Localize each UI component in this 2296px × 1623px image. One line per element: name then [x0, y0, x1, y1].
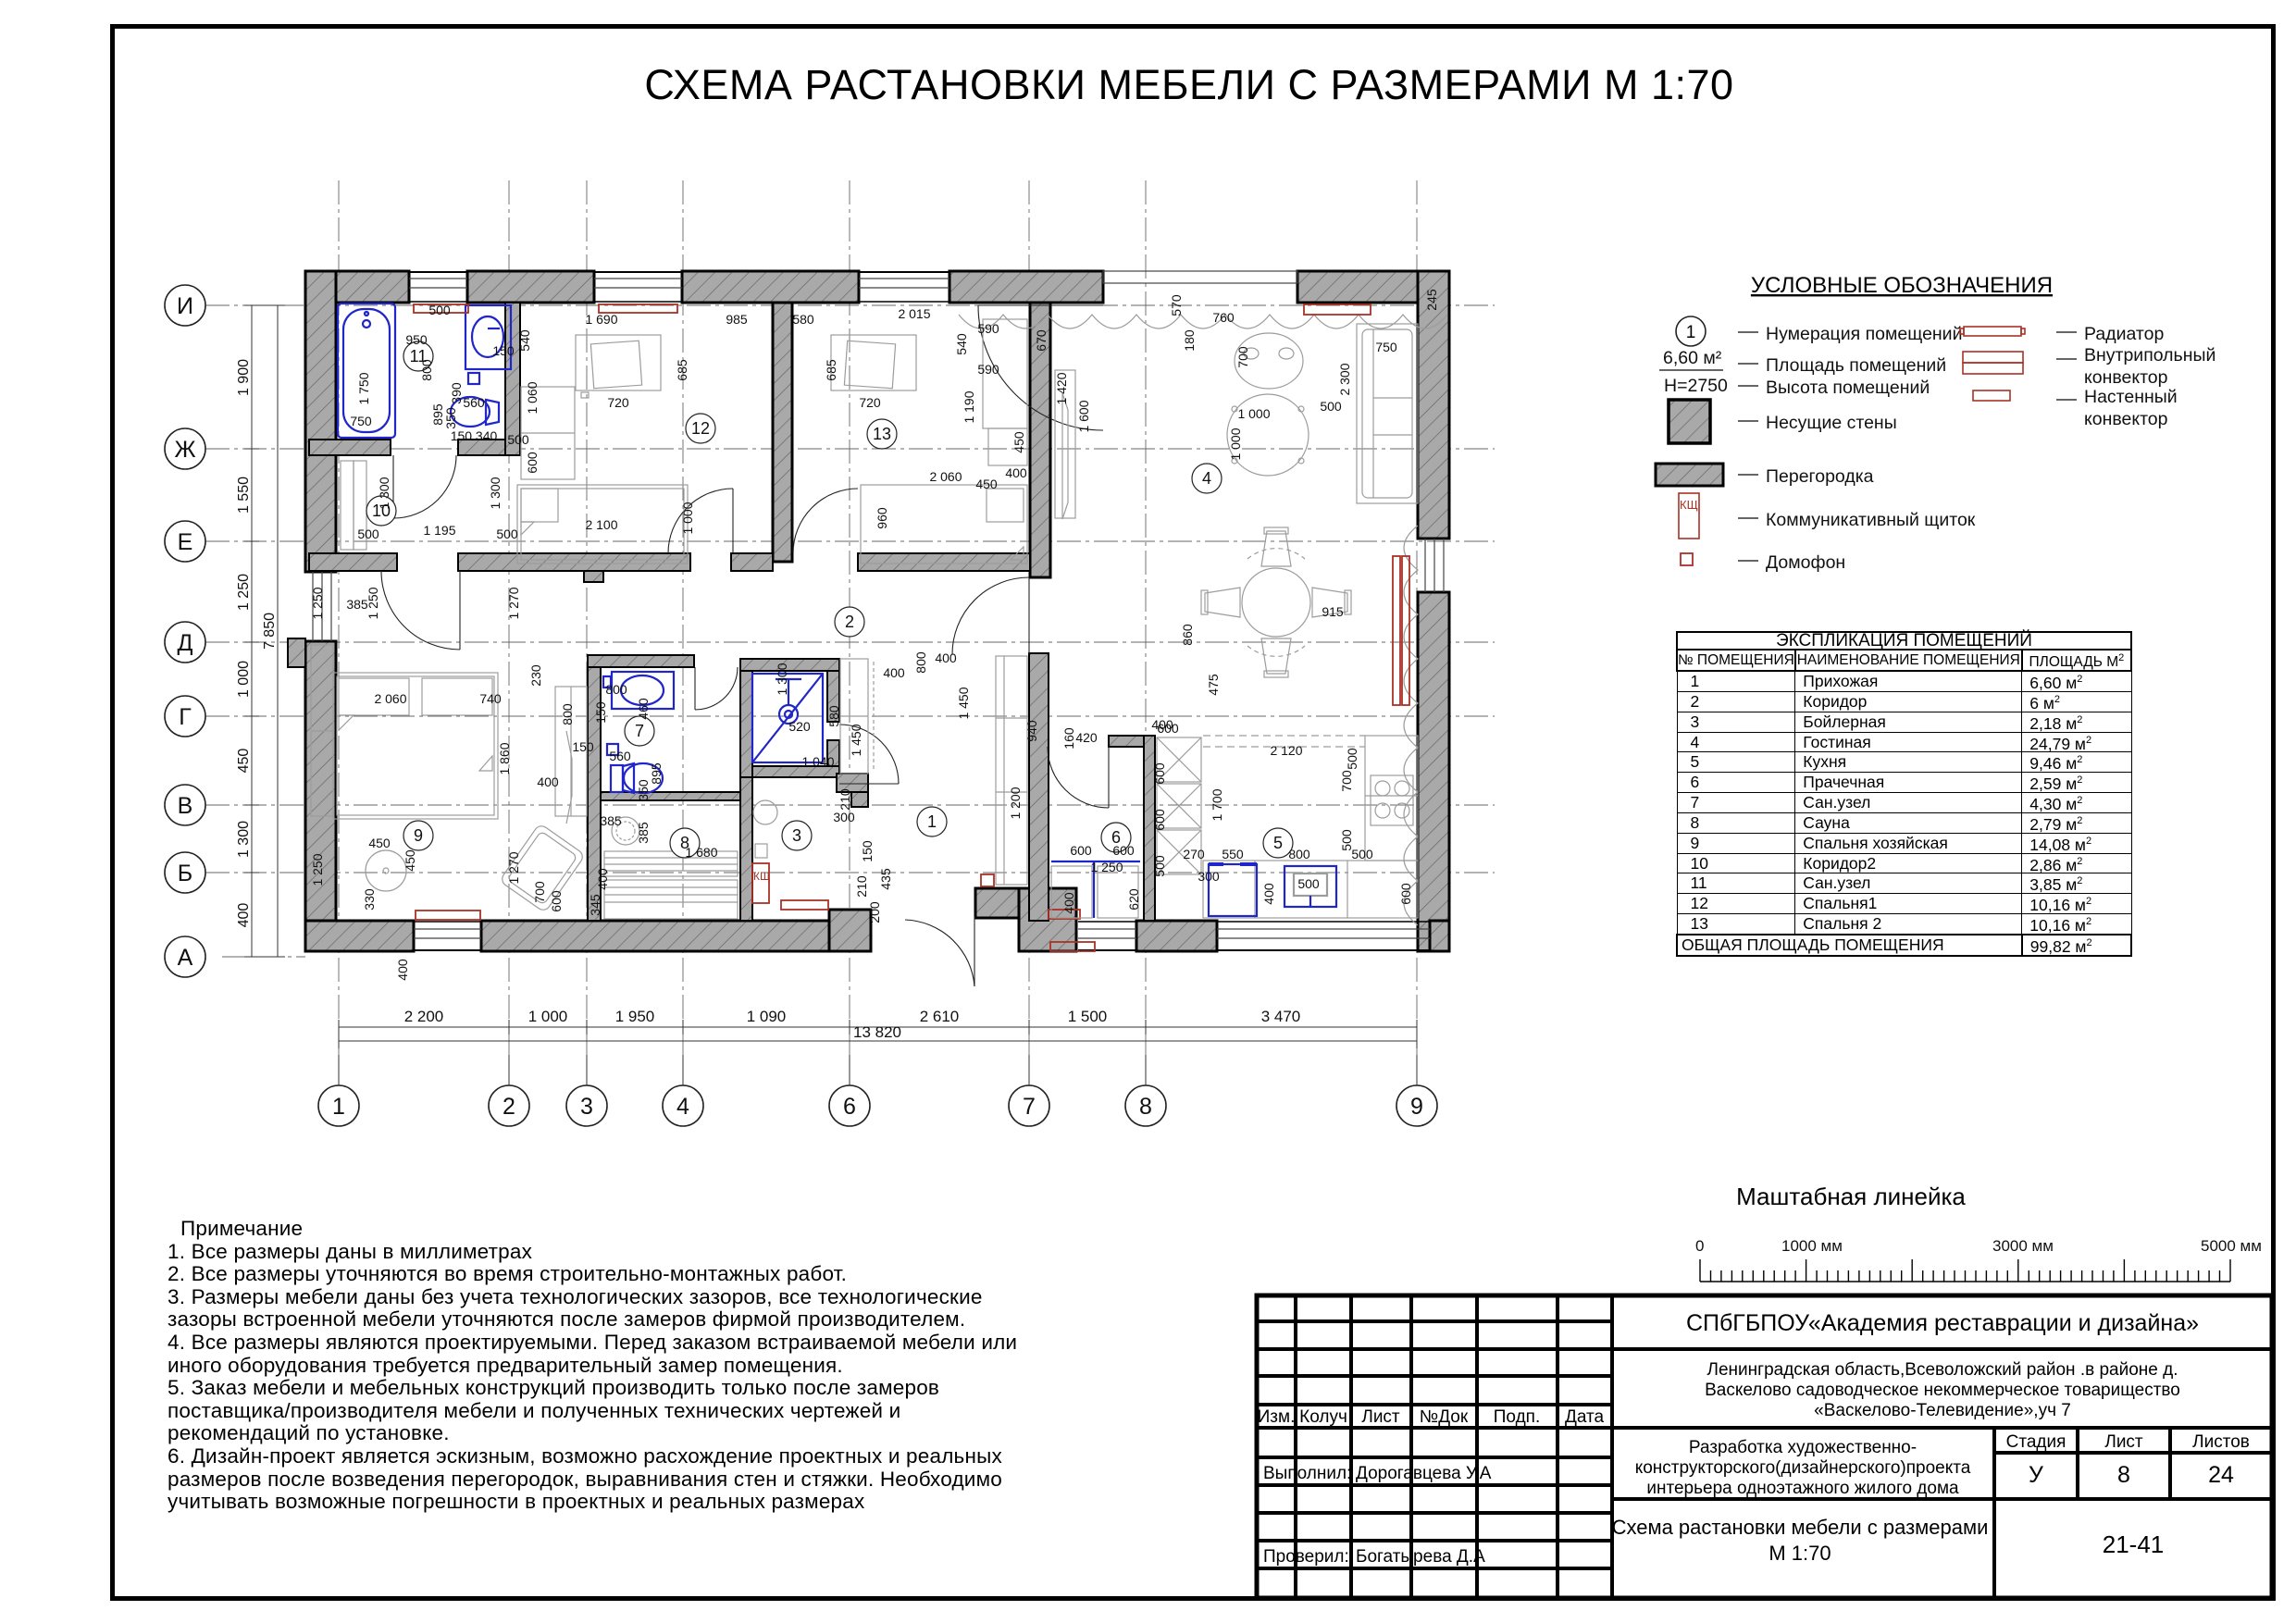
svg-text:Радиатор: Радиатор: [2084, 324, 2164, 344]
svg-text:Васкелово садоводческое некомм: Васкелово садоводческое некоммерческое т…: [1705, 1381, 2180, 1400]
svg-text:Перегородка: Перегородка: [1766, 466, 1874, 487]
svg-text:800: 800: [605, 682, 627, 697]
svg-text:24: 24: [2208, 1462, 2234, 1488]
svg-text:5: 5: [1273, 834, 1283, 852]
svg-text:9: 9: [414, 826, 423, 845]
svg-text:Е: Е: [178, 529, 193, 555]
svg-text:450: 450: [975, 477, 998, 491]
svg-text:Изм.: Изм.: [1258, 1407, 1296, 1427]
svg-text:4: 4: [1202, 469, 1211, 488]
svg-text:1000 мм: 1000 мм: [1781, 1237, 1843, 1255]
svg-text:2 060: 2 060: [929, 469, 962, 484]
svg-text:915: 915: [1322, 604, 1344, 619]
svg-text:3000 мм: 3000 мм: [1992, 1237, 2054, 1255]
svg-text:2 100: 2 100: [585, 517, 617, 532]
svg-text:500: 500: [1297, 876, 1320, 891]
svg-text:540: 540: [517, 329, 532, 352]
svg-text:450: 450: [236, 749, 252, 774]
svg-text:13: 13: [873, 425, 891, 443]
svg-text:3: 3: [580, 1094, 593, 1120]
svg-text:1 450: 1 450: [849, 724, 863, 756]
svg-text:1 250: 1 250: [1090, 860, 1123, 874]
svg-text:Схема растановки мебели с разм: Схема растановки мебели с размерами: [1612, 1516, 1989, 1539]
svg-text:3: 3: [792, 826, 801, 845]
svg-text:1 900: 1 900: [236, 359, 252, 396]
svg-text:600: 600: [525, 452, 540, 474]
svg-text:150: 150: [492, 343, 515, 358]
svg-text:800: 800: [560, 703, 575, 725]
svg-text:1 680: 1 680: [685, 845, 717, 860]
svg-text:Лист: Лист: [1361, 1407, 1400, 1427]
svg-text:860: 860: [1180, 624, 1195, 646]
svg-text:Коммуникативный щиток: Коммуникативный щиток: [1766, 510, 1976, 530]
svg-text:21-41: 21-41: [2103, 1530, 2165, 1558]
svg-text:600: 600: [1157, 721, 1179, 736]
svg-text:Лист: Лист: [2104, 1432, 2143, 1452]
svg-text:600: 600: [1152, 809, 1167, 831]
svg-text:750: 750: [1375, 340, 1397, 354]
svg-text:1: 1: [927, 812, 937, 831]
svg-text:560: 560: [463, 395, 485, 410]
svg-text:1 500: 1 500: [1068, 1008, 1108, 1025]
svg-text:1 950: 1 950: [615, 1008, 655, 1025]
svg-text:600: 600: [549, 890, 564, 912]
svg-text:700: 700: [1235, 346, 1250, 368]
svg-text:600: 600: [1112, 843, 1135, 858]
svg-text:590: 590: [977, 321, 999, 336]
svg-text:500: 500: [507, 432, 529, 447]
svg-text:400: 400: [883, 665, 905, 680]
svg-text:600: 600: [1070, 843, 1092, 858]
svg-text:570: 570: [1169, 294, 1184, 316]
svg-text:1 200: 1 200: [1008, 787, 1023, 819]
svg-text:УСЛОВНЫЕ ОБОЗНАЧЕНИЯ: УСЛОВНЫЕ ОБОЗНАЧЕНИЯ: [1751, 273, 2053, 298]
svg-text:КЩ: КЩ: [753, 870, 770, 883]
svg-text:0: 0: [1695, 1237, 1704, 1255]
svg-text:1 600: 1 600: [1076, 400, 1091, 432]
svg-text:8: 8: [1139, 1094, 1152, 1120]
svg-text:210: 210: [854, 875, 869, 898]
svg-text:500: 500: [496, 527, 518, 541]
svg-text:1 000: 1 000: [236, 661, 252, 698]
svg-text:1 450: 1 450: [956, 687, 971, 719]
svg-text:2 300: 2 300: [1337, 363, 1352, 395]
svg-text:3 470: 3 470: [1261, 1008, 1301, 1025]
svg-text:580: 580: [826, 705, 841, 727]
svg-text:Разработка художественно-: Разработка художественно-: [1689, 1438, 1917, 1457]
svg-text:580: 580: [792, 312, 814, 327]
svg-text:960: 960: [875, 507, 889, 529]
svg-text:12: 12: [691, 419, 710, 438]
svg-text:7: 7: [1023, 1094, 1036, 1120]
svg-text:450: 450: [368, 836, 391, 850]
svg-text:1 000: 1 000: [1228, 427, 1243, 460]
svg-text:1 270: 1 270: [506, 587, 521, 619]
svg-text:800: 800: [913, 651, 928, 674]
svg-text:400: 400: [537, 774, 559, 789]
svg-text:1 190: 1 190: [962, 390, 976, 423]
svg-text:Проверил:: Проверил:: [1263, 1547, 1349, 1567]
svg-text:Н=2750: Н=2750: [1664, 376, 1728, 396]
svg-text:И: И: [177, 293, 193, 319]
svg-text:550: 550: [1222, 847, 1244, 861]
svg-text:конвектор: конвектор: [2084, 367, 2168, 388]
svg-text:Богатырева Д.А: Богатырева Д.А: [1356, 1547, 1485, 1567]
svg-text:1 420: 1 420: [1054, 372, 1069, 404]
svg-text:1: 1: [332, 1094, 345, 1120]
svg-text:420: 420: [1075, 730, 1098, 745]
svg-text:конструкторского(дизайнерского: конструкторского(дизайнерского)проекта: [1635, 1458, 1971, 1478]
svg-text:1 750: 1 750: [356, 372, 371, 404]
svg-text:895: 895: [649, 762, 664, 785]
svg-text:Дорогавцева У.А: Дорогавцева У.А: [1356, 1464, 1492, 1483]
svg-text:1 300: 1 300: [775, 663, 789, 695]
svg-text:Ж: Ж: [174, 437, 195, 463]
svg-text:400: 400: [395, 959, 410, 981]
svg-text:750: 750: [350, 414, 372, 428]
svg-text:400: 400: [1005, 465, 1027, 480]
svg-text:600: 600: [1152, 762, 1167, 785]
svg-text:Выполнил:: Выполнил:: [1263, 1464, 1351, 1483]
svg-text:2 610: 2 610: [920, 1008, 960, 1025]
svg-text:540: 540: [954, 333, 969, 355]
svg-text:520: 520: [788, 719, 811, 734]
svg-text:Д: Д: [178, 630, 193, 656]
svg-text:7: 7: [635, 722, 644, 740]
svg-text:700: 700: [1339, 770, 1354, 792]
svg-text:«Васкелово-Телевидение»,уч 7: «Васкелово-Телевидение»,уч 7: [1814, 1401, 2071, 1420]
svg-text:500: 500: [428, 303, 451, 317]
svg-text:1 690: 1 690: [585, 312, 617, 327]
svg-text:150: 150: [593, 701, 608, 724]
svg-text:385: 385: [600, 813, 622, 828]
svg-text:9: 9: [1410, 1094, 1423, 1120]
svg-text:Площадь помещений: Площадь помещений: [1766, 355, 1946, 376]
svg-text:350: 350: [636, 779, 651, 801]
svg-text:700: 700: [532, 881, 547, 903]
svg-text:4: 4: [676, 1094, 689, 1120]
svg-text:2 200: 2 200: [404, 1008, 444, 1025]
svg-text:интерьера одноэтажного жилого: интерьера одноэтажного жилого дома: [1646, 1479, 1959, 1498]
svg-text:6,60 м²: 6,60 м²: [1663, 348, 1722, 368]
svg-text:400: 400: [1261, 883, 1276, 905]
svg-text:1 700: 1 700: [1210, 788, 1224, 821]
svg-text:2 015: 2 015: [898, 306, 930, 321]
svg-text:985: 985: [726, 312, 748, 327]
svg-text:У: У: [2029, 1462, 2043, 1488]
svg-text:450: 450: [1011, 431, 1026, 453]
svg-text:2 120: 2 120: [1270, 743, 1302, 758]
svg-text:2 060: 2 060: [374, 691, 406, 706]
svg-text:Нумерация помещений: Нумерация помещений: [1766, 324, 1962, 344]
svg-text:Настенный: Настенный: [2084, 387, 2178, 407]
svg-text:500: 500: [357, 527, 379, 541]
svg-text:1 250: 1 250: [236, 574, 252, 611]
svg-text:Ленинградская область,Всеволож: Ленинградская область,Всеволожский район…: [1707, 1360, 2178, 1380]
svg-text:СПбГБПОУ«Академия реставрации: СПбГБПОУ«Академия реставрации и дизайна»: [1686, 1310, 2199, 1336]
svg-text:800: 800: [1288, 847, 1310, 861]
svg-text:1 000: 1 000: [528, 1008, 568, 1025]
svg-text:670: 670: [1034, 329, 1049, 352]
svg-text:Несущие стены: Несущие стены: [1766, 413, 1897, 433]
svg-text:7 850: 7 850: [262, 613, 278, 650]
svg-text:1 300: 1 300: [377, 477, 391, 509]
svg-text:800: 800: [419, 359, 434, 381]
svg-text:1 195: 1 195: [423, 523, 455, 538]
svg-text:475: 475: [1206, 674, 1221, 696]
svg-text:Колуч: Колуч: [1299, 1407, 1347, 1427]
svg-text:1 300: 1 300: [488, 477, 503, 509]
svg-text:385: 385: [636, 822, 651, 844]
svg-text:1 250: 1 250: [310, 587, 325, 619]
svg-text:5000 мм: 5000 мм: [2201, 1237, 2262, 1255]
svg-text:Внутрипольный: Внутрипольный: [2084, 345, 2215, 365]
svg-text:1 860: 1 860: [497, 742, 512, 774]
svg-text:720: 720: [859, 395, 881, 410]
svg-text:В: В: [178, 793, 193, 819]
svg-text:2: 2: [503, 1094, 515, 1120]
svg-text:200: 200: [867, 901, 882, 923]
svg-text:620: 620: [1126, 888, 1141, 911]
svg-text:270: 270: [1183, 847, 1205, 861]
svg-text:435: 435: [878, 868, 893, 890]
svg-text:940: 940: [1024, 720, 1039, 742]
svg-text:400: 400: [595, 868, 610, 890]
svg-text:230: 230: [528, 664, 543, 687]
svg-text:460: 460: [636, 698, 651, 720]
svg-text:1: 1: [1686, 323, 1696, 342]
svg-text:Листов: Листов: [2192, 1432, 2250, 1452]
svg-text:1 270: 1 270: [506, 851, 521, 884]
svg-text:Домофон: Домофон: [1766, 552, 1845, 573]
svg-text:М 1:70: М 1:70: [1769, 1542, 1831, 1565]
svg-text:№Док: №Док: [1420, 1407, 1469, 1427]
svg-text:350: 350: [443, 407, 458, 429]
svg-text:160: 160: [1061, 727, 1076, 750]
svg-text:720: 720: [607, 395, 629, 410]
svg-text:150 340: 150 340: [451, 428, 498, 443]
svg-text:А: А: [178, 945, 193, 971]
svg-text:560: 560: [609, 749, 631, 763]
svg-text:950: 950: [405, 332, 428, 347]
svg-text:400: 400: [236, 903, 252, 928]
svg-text:150: 150: [572, 739, 594, 754]
svg-text:1 000: 1 000: [1237, 406, 1270, 421]
svg-text:245: 245: [1424, 289, 1439, 311]
svg-text:400: 400: [1061, 892, 1076, 914]
svg-text:Дата: Дата: [1565, 1407, 1605, 1427]
svg-text:Б: Б: [178, 861, 192, 886]
svg-text:330: 330: [362, 888, 377, 911]
svg-text:300: 300: [833, 810, 855, 824]
svg-text:1 250: 1 250: [366, 587, 380, 619]
svg-text:390: 390: [449, 382, 464, 404]
svg-text:500: 500: [1320, 399, 1342, 414]
svg-text:2: 2: [845, 613, 854, 631]
svg-text:8: 8: [2117, 1462, 2130, 1488]
svg-text:6: 6: [843, 1094, 856, 1120]
svg-text:Подп.: Подп.: [1494, 1407, 1540, 1427]
svg-text:1 250: 1 250: [310, 853, 325, 886]
svg-text:500: 500: [1345, 748, 1359, 770]
svg-text:685: 685: [675, 359, 689, 381]
svg-text:760: 760: [1212, 310, 1235, 325]
svg-text:400: 400: [935, 650, 957, 665]
svg-text:685: 685: [824, 359, 838, 381]
svg-text:Г: Г: [179, 704, 192, 730]
svg-text:1 090: 1 090: [747, 1008, 787, 1025]
svg-text:конвектор: конвектор: [2084, 409, 2168, 429]
svg-text:1 060: 1 060: [525, 381, 540, 414]
svg-text:345: 345: [588, 894, 602, 916]
svg-text:13 820: 13 820: [853, 1023, 901, 1041]
svg-text:Стадия: Стадия: [2006, 1432, 2066, 1452]
svg-text:500: 500: [1152, 855, 1167, 877]
svg-text:500: 500: [1351, 847, 1373, 861]
svg-text:600: 600: [1398, 883, 1413, 905]
svg-text:1 040: 1 040: [801, 754, 834, 769]
svg-text:740: 740: [479, 691, 502, 706]
svg-text:450: 450: [403, 849, 417, 872]
svg-text:300: 300: [1198, 869, 1220, 884]
svg-text:180: 180: [1182, 329, 1197, 352]
svg-text:1 550: 1 550: [236, 477, 252, 514]
svg-text:210: 210: [838, 788, 852, 811]
svg-text:КЩ: КЩ: [1680, 498, 1698, 512]
svg-text:1 000: 1 000: [680, 502, 695, 534]
svg-text:1 300: 1 300: [236, 821, 252, 858]
svg-text:590: 590: [977, 362, 999, 377]
svg-text:Высота помещений: Высота помещений: [1766, 378, 1930, 398]
svg-text:150: 150: [860, 840, 875, 862]
